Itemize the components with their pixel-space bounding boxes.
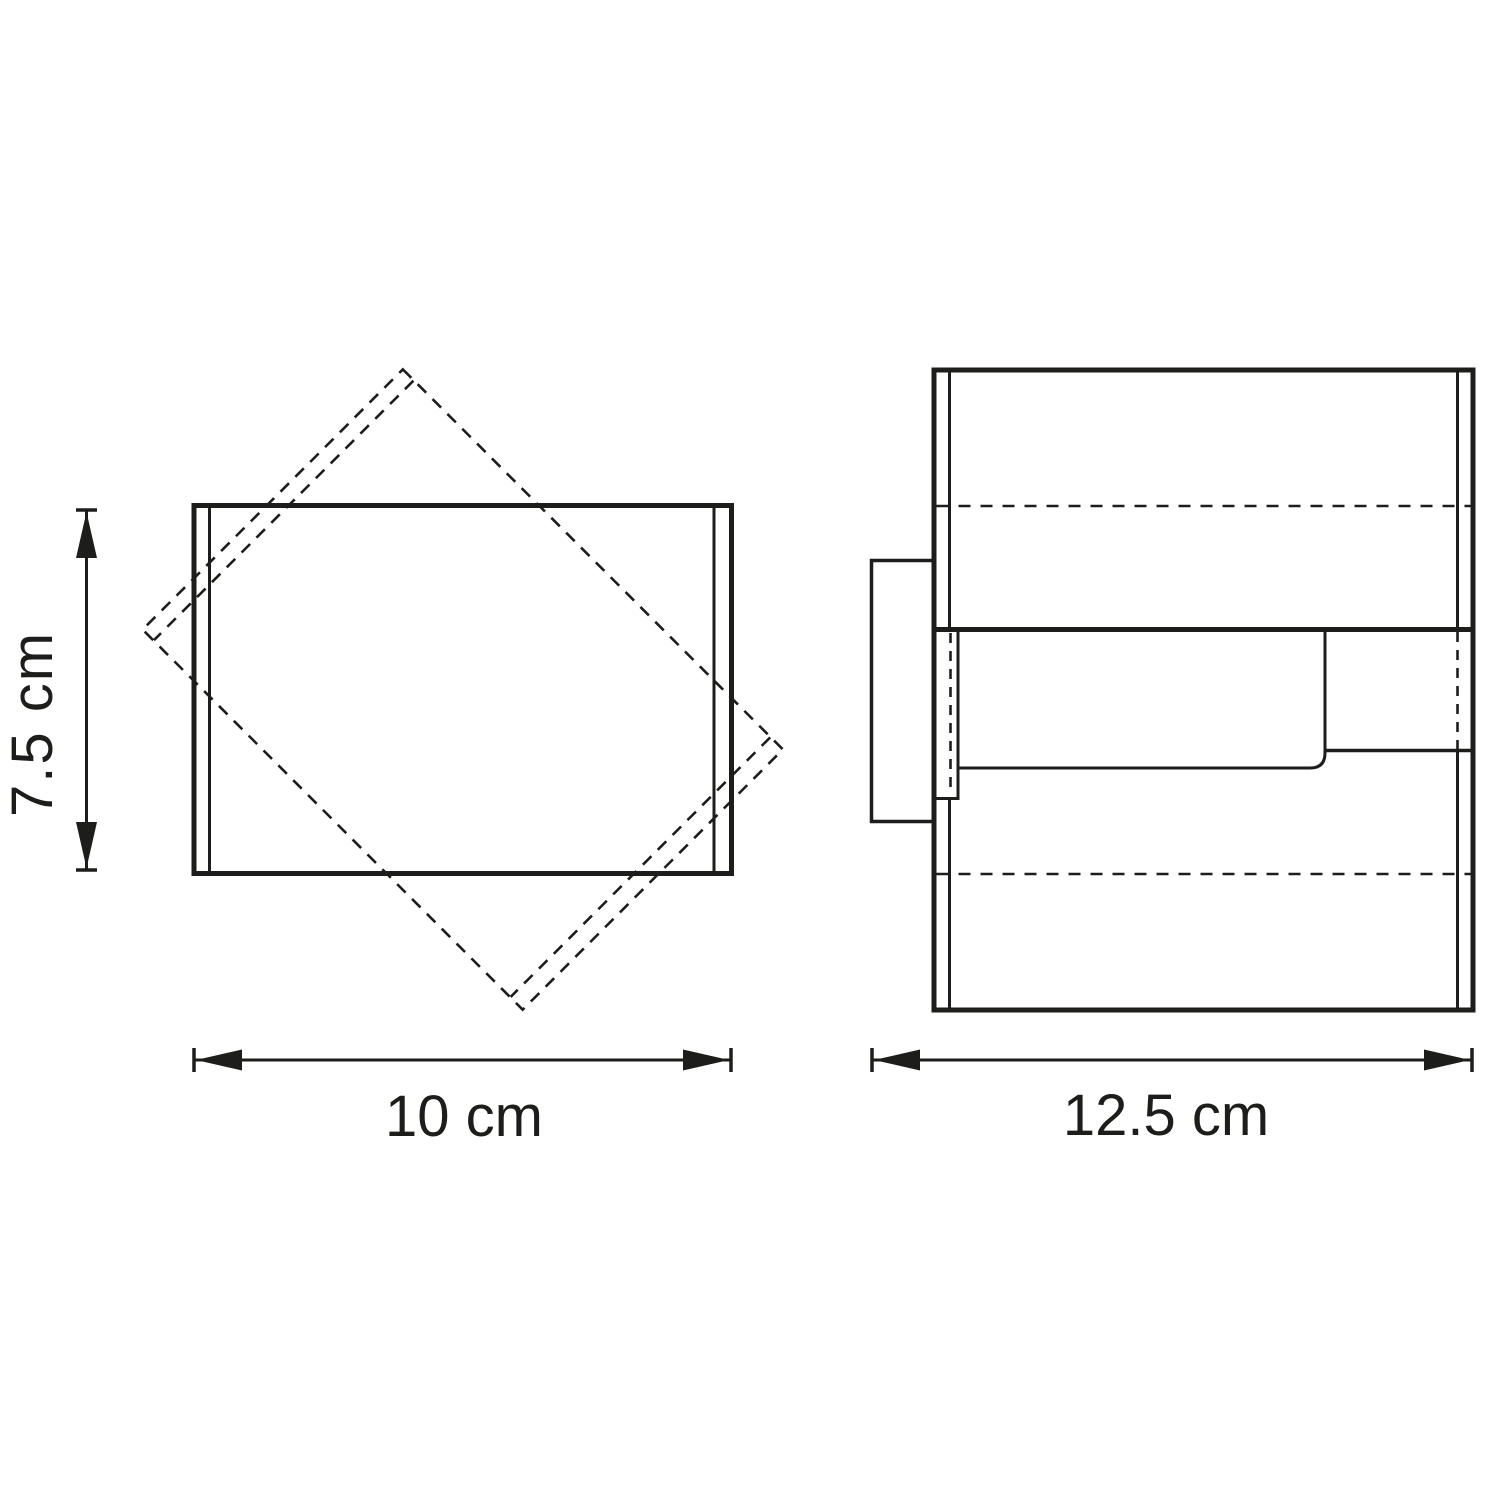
drawing-linework <box>0 0 1500 1500</box>
height-arrow-down-icon <box>76 822 97 868</box>
width-arrow-right-icon <box>683 1050 729 1071</box>
side-view <box>872 370 1474 1010</box>
technical-drawing-page: 7.5 cm 10 cm 12.5 cm <box>0 0 1500 1500</box>
side-body-outline <box>934 370 1473 1010</box>
wall-bracket-outline <box>872 561 937 822</box>
rotated-body-outline <box>143 369 783 1009</box>
width-dimension-label: 10 cm <box>385 1088 543 1146</box>
dimension-arrowheads <box>76 512 1470 1071</box>
depth-arrow-right-icon <box>1424 1050 1470 1071</box>
depth-arrow-left-icon <box>874 1050 920 1071</box>
front-body-outline <box>194 506 732 874</box>
dimension-lines <box>76 510 1472 1072</box>
lamp-module-outline <box>959 632 1325 769</box>
width-arrow-left-icon <box>196 1050 242 1071</box>
front-view <box>143 369 783 1009</box>
depth-dimension-label: 12.5 cm <box>1063 1087 1269 1145</box>
height-dimension-label: 7.5 cm <box>4 631 62 817</box>
height-arrow-up-icon <box>76 512 97 558</box>
rotated-position-outline <box>143 369 783 1009</box>
